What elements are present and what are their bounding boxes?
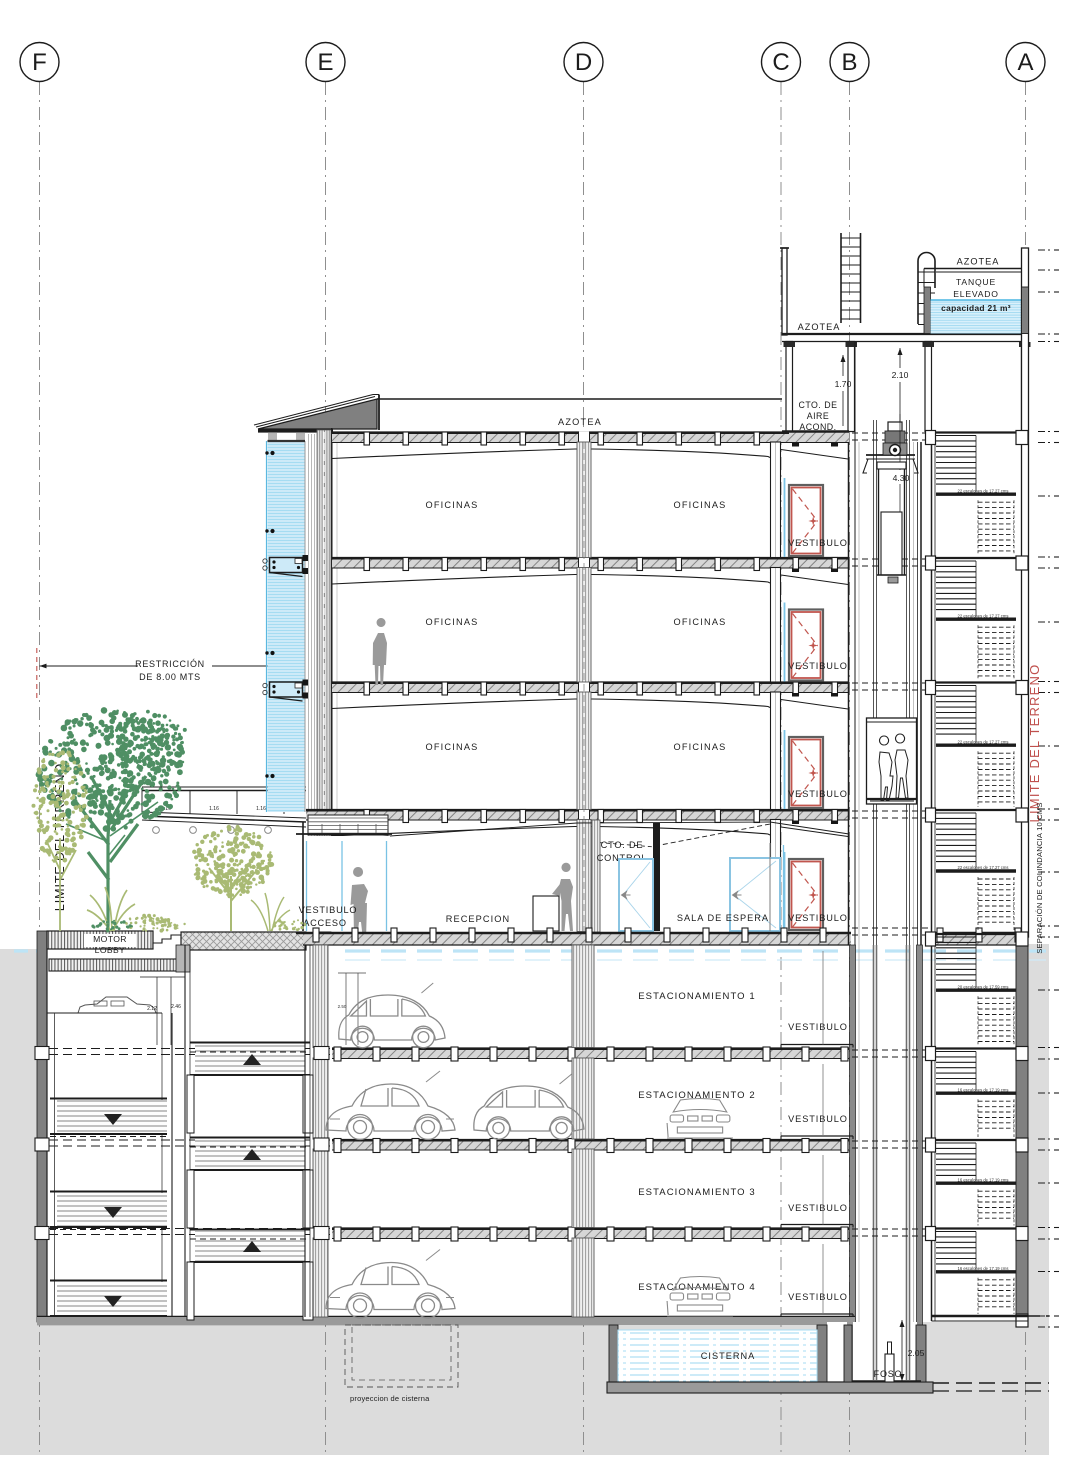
svg-text:VESTIBULO: VESTIBULO (788, 789, 848, 799)
svg-text:E: E (317, 49, 333, 76)
svg-text:SALA DE ESPERA: SALA DE ESPERA (677, 913, 769, 923)
svg-text:1.70: 1.70 (835, 379, 852, 389)
svg-text:ESTACIONAMIENTO 2: ESTACIONAMIENTO 2 (638, 1090, 756, 1101)
svg-text:OFICINAS: OFICINAS (674, 617, 727, 627)
svg-text:16 escalones de 17.19 cms: 16 escalones de 17.19 cms (958, 1177, 1009, 1182)
svg-text:AZOTEA: AZOTEA (957, 257, 1000, 267)
svg-text:VESTIBULO: VESTIBULO (788, 538, 848, 548)
svg-text:RESTRICCIÓN: RESTRICCIÓN (135, 659, 205, 669)
svg-text:VESTIBULO: VESTIBULO (788, 913, 848, 923)
svg-text:VESTIBULO: VESTIBULO (788, 1292, 848, 1302)
svg-text:C: C (772, 49, 789, 76)
svg-text:D: D (575, 49, 592, 76)
svg-text:TANQUE: TANQUE (956, 277, 996, 287)
svg-text:2.10: 2.10 (892, 370, 909, 380)
svg-text:2.05: 2.05 (908, 1348, 925, 1358)
svg-text:20 escalones de 17.59 cms: 20 escalones de 17.59 cms (958, 984, 1009, 989)
svg-text:1.16: 1.16 (209, 806, 219, 812)
svg-text:ESTACIONAMIENTO 1: ESTACIONAMIENTO 1 (638, 991, 756, 1002)
svg-text:2.46: 2.46 (171, 1004, 181, 1010)
svg-text:CTO. DE: CTO. DE (601, 840, 644, 850)
svg-text:4.30: 4.30 (893, 473, 910, 483)
svg-text:F: F (32, 49, 47, 76)
svg-text:proyeccion de cisterna: proyeccion de cisterna (350, 1394, 430, 1403)
svg-text:B: B (841, 49, 857, 76)
svg-text:1.16: 1.16 (256, 806, 266, 812)
svg-text:SEPARACIÓN DE COLINDANCIA 10 C: SEPARACIÓN DE COLINDANCIA 10 CMS (1035, 802, 1044, 953)
svg-text:OFICINAS: OFICINAS (426, 742, 479, 752)
svg-text:RECEPCION: RECEPCION (446, 914, 511, 924)
svg-text:ELEVADO: ELEVADO (953, 289, 999, 299)
svg-text:22 escalones de 17.27 cms: 22 escalones de 17.27 cms (958, 739, 1009, 744)
svg-text:VESTIBULO: VESTIBULO (788, 661, 848, 671)
svg-text:ESTACIONAMIENTO 3: ESTACIONAMIENTO 3 (638, 1187, 756, 1198)
svg-text:LIMITE DEL TERRENO: LIMITE DEL TERRENO (1027, 664, 1042, 823)
svg-text:16 escalones de 17.19 cms: 16 escalones de 17.19 cms (958, 1266, 1009, 1271)
svg-text:2.12: 2.12 (147, 1006, 157, 1012)
svg-text:A: A (1017, 49, 1033, 76)
svg-text:ACCESO: ACCESO (303, 918, 347, 928)
svg-text:22 escalones de 17.27 cms: 22 escalones de 17.27 cms (958, 488, 1009, 493)
svg-text:2.50: 2.50 (338, 1004, 347, 1009)
svg-text:VESTIBULO: VESTIBULO (788, 1022, 848, 1032)
svg-text:22 escalones de 17.27 cms: 22 escalones de 17.27 cms (958, 613, 1009, 618)
svg-text:VESTIBULO: VESTIBULO (299, 905, 358, 915)
svg-text:AZOTEA: AZOTEA (558, 417, 602, 427)
svg-text:OFICINAS: OFICINAS (426, 617, 479, 627)
svg-text:capacidad 21 m³: capacidad 21 m³ (941, 303, 1011, 313)
svg-text:VESTIBULO: VESTIBULO (788, 1203, 848, 1213)
svg-text:VESTIBULO: VESTIBULO (788, 1114, 848, 1124)
svg-text:DE 8.00 MTS: DE 8.00 MTS (139, 672, 201, 682)
svg-text:AIRE: AIRE (807, 411, 830, 421)
svg-text:OFICINAS: OFICINAS (674, 500, 727, 510)
svg-text:LOBBY: LOBBY (95, 945, 126, 955)
svg-text:FOSO: FOSO (874, 1369, 903, 1379)
svg-text:MOTOR: MOTOR (93, 934, 127, 944)
svg-text:OFICINAS: OFICINAS (674, 742, 727, 752)
svg-text:OFICINAS: OFICINAS (426, 500, 479, 510)
svg-text:CISTERNA: CISTERNA (701, 1351, 755, 1361)
svg-text:16 escalones de 17.19 cms: 16 escalones de 17.19 cms (958, 1087, 1009, 1092)
svg-text:CTO. DE: CTO. DE (798, 400, 837, 410)
svg-text:AZOTEA: AZOTEA (798, 322, 841, 332)
svg-text:22 escalones de 17.27 cms: 22 escalones de 17.27 cms (958, 865, 1009, 870)
